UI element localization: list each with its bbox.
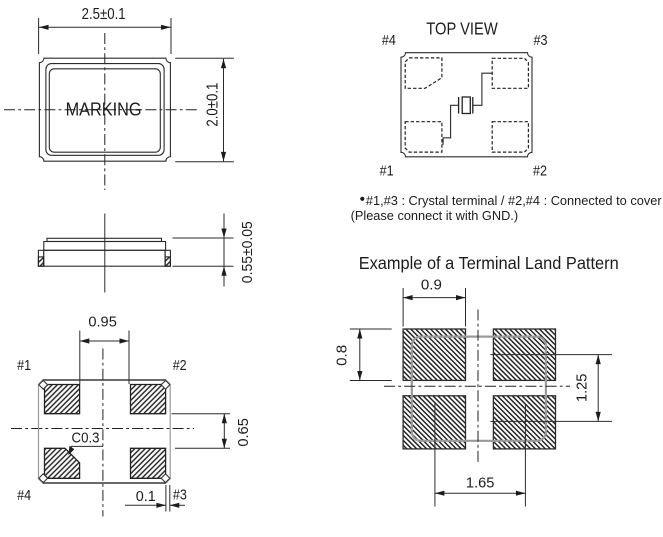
svg-text:#4: #4 xyxy=(17,487,31,504)
svg-text:0.55±0.05: 0.55±0.05 xyxy=(239,221,256,283)
svg-text:MARKING: MARKING xyxy=(66,99,142,120)
svg-text:0.1: 0.1 xyxy=(136,489,156,505)
svg-text:2.5±0.1: 2.5±0.1 xyxy=(82,6,126,23)
svg-text:#3: #3 xyxy=(534,32,548,49)
svg-text:1.65: 1.65 xyxy=(466,476,495,492)
svg-text:#1: #1 xyxy=(17,357,31,374)
svg-text:#4: #4 xyxy=(382,32,396,49)
svg-text:0.95: 0.95 xyxy=(88,315,117,331)
svg-text:0.8: 0.8 xyxy=(335,345,351,366)
svg-text:0.65: 0.65 xyxy=(236,418,252,447)
svg-text:C0.3: C0.3 xyxy=(72,431,100,447)
svg-text:2.0±0.1: 2.0±0.1 xyxy=(205,83,222,127)
svg-text:(Please connect it with GND.): (Please connect it with GND.) xyxy=(351,208,518,223)
svg-text:#2: #2 xyxy=(533,162,547,179)
svg-text:1.25: 1.25 xyxy=(575,374,591,403)
svg-text:#1: #1 xyxy=(380,162,394,179)
svg-text:#1,#3 : Crystal terminal / #2,: #1,#3 : Crystal terminal / #2,#4 : Conne… xyxy=(366,193,662,208)
svg-text:0.9: 0.9 xyxy=(421,278,442,294)
svg-text:TOP VIEW: TOP VIEW xyxy=(426,19,498,39)
svg-text:#3: #3 xyxy=(173,487,187,504)
svg-text:Example of a Terminal Land Pat: Example of a Terminal Land Pattern xyxy=(359,253,619,273)
svg-text:#2: #2 xyxy=(173,357,187,374)
